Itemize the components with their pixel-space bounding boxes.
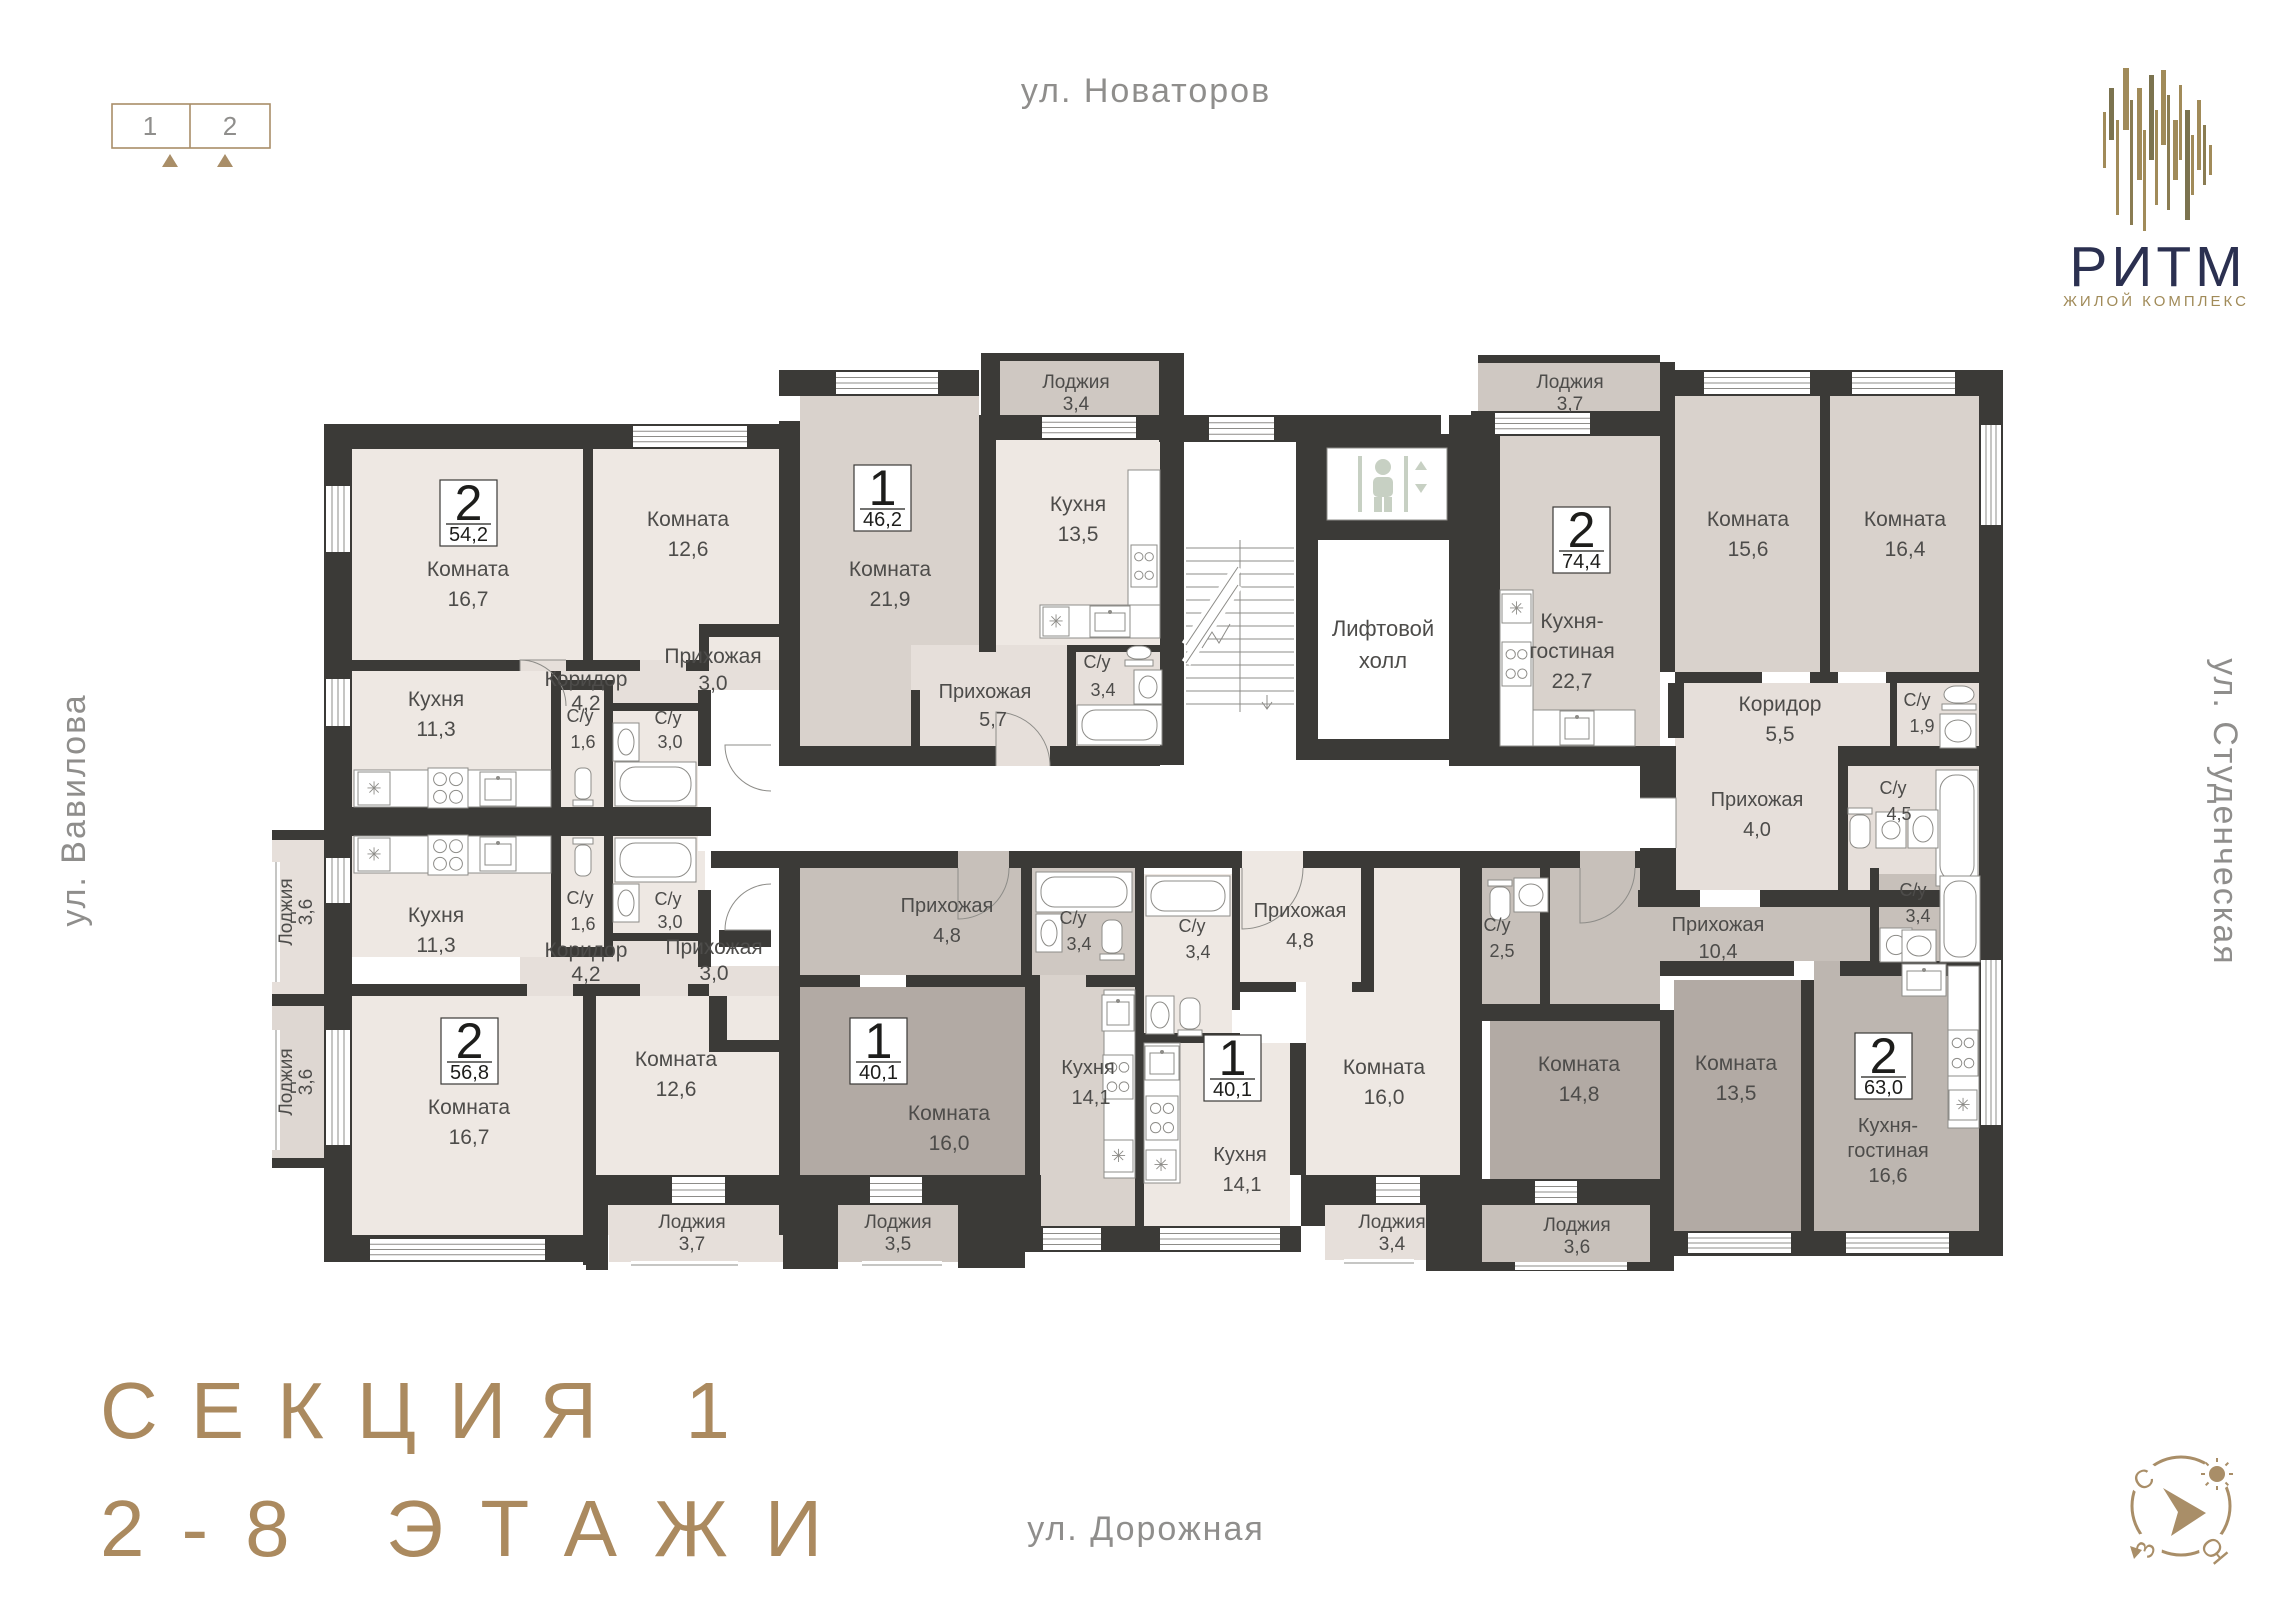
svg-text:12,6: 12,6: [668, 538, 709, 561]
svg-text:ул. Дорожная: ул. Дорожная: [1027, 1510, 1265, 1548]
svg-text:С/у: С/у: [1060, 908, 1087, 928]
svg-text:Прихожая: Прихожая: [1254, 900, 1347, 922]
svg-text:ул. Новаторов: ул. Новаторов: [1021, 72, 1271, 110]
svg-text:14,8: 14,8: [1559, 1083, 1600, 1106]
svg-text:4,8: 4,8: [1286, 930, 1314, 952]
svg-text:Прихожая: Прихожая: [665, 936, 762, 959]
svg-text:Лоджия: Лоджия: [1358, 1212, 1425, 1233]
svg-text:гостиная: гостиная: [1847, 1140, 1928, 1162]
svg-text:Лоджия: Лоджия: [276, 1048, 297, 1115]
svg-text:63,0: 63,0: [1864, 1077, 1903, 1099]
svg-text:✳: ✳: [366, 779, 381, 799]
svg-text:3,0: 3,0: [657, 912, 682, 932]
svg-text:3,7: 3,7: [679, 1234, 705, 1255]
svg-text:5,7: 5,7: [979, 709, 1007, 731]
svg-text:12,6: 12,6: [656, 1078, 697, 1101]
svg-text:3,0: 3,0: [699, 962, 728, 985]
svg-text:С/у: С/у: [1900, 880, 1927, 900]
svg-text:холл: холл: [1359, 648, 1407, 673]
svg-text:Комната: Комната: [427, 558, 510, 581]
svg-text:1: 1: [869, 460, 897, 516]
svg-text:С/у: С/у: [655, 889, 682, 909]
svg-text:3,0: 3,0: [698, 672, 727, 695]
svg-text:1: 1: [143, 111, 157, 141]
svg-text:11,3: 11,3: [416, 934, 455, 957]
svg-text:16,0: 16,0: [929, 1132, 970, 1155]
svg-text:Комната: Комната: [1864, 508, 1947, 531]
svg-text:Лоджия: Лоджия: [864, 1212, 931, 1233]
svg-text:Прихожая: Прихожая: [1711, 789, 1804, 811]
svg-text:✳: ✳: [1509, 599, 1524, 619]
svg-text:40,1: 40,1: [859, 1062, 898, 1084]
svg-text:Прихожая: Прихожая: [664, 645, 761, 668]
svg-text:10,4: 10,4: [1699, 941, 1738, 963]
svg-text:ЖИЛОЙ КОМПЛЕКС: ЖИЛОЙ КОМПЛЕКС: [2063, 292, 2249, 310]
svg-text:С/у: С/у: [567, 706, 594, 726]
svg-text:Кухня: Кухня: [1050, 493, 1106, 516]
svg-text:3,4: 3,4: [1905, 906, 1930, 926]
svg-text:Коридор: Коридор: [545, 668, 628, 691]
svg-text:С/у: С/у: [1484, 915, 1511, 935]
svg-text:15,6: 15,6: [1728, 538, 1769, 561]
svg-text:16,0: 16,0: [1364, 1086, 1405, 1109]
svg-text:2,5: 2,5: [1489, 941, 1514, 961]
svg-text:РИТМ: РИТМ: [2069, 235, 2246, 299]
svg-text:Прихожая: Прихожая: [901, 895, 994, 917]
svg-text:54,2: 54,2: [449, 524, 488, 546]
svg-text:2: 2: [455, 475, 483, 531]
svg-text:Комната: Комната: [647, 508, 730, 531]
svg-text:Кухня: Кухня: [408, 688, 464, 711]
svg-text:13,5: 13,5: [1058, 523, 1099, 546]
svg-text:46,2: 46,2: [863, 509, 902, 531]
svg-text:3,6: 3,6: [296, 1069, 317, 1095]
svg-text:Коридор: Коридор: [1739, 693, 1822, 716]
svg-text:Комната: Комната: [1695, 1052, 1778, 1075]
svg-text:Кухня-: Кухня-: [1858, 1115, 1918, 1137]
svg-text:3,7: 3,7: [1557, 394, 1583, 415]
svg-text:Лоджия: Лоджия: [1042, 372, 1109, 393]
svg-text:Кухня: Кухня: [1061, 1057, 1115, 1079]
svg-text:3,4: 3,4: [1063, 394, 1090, 415]
svg-text:2-8 ЭТАЖИ: 2-8 ЭТАЖИ: [100, 1484, 859, 1573]
svg-text:✳: ✳: [366, 845, 381, 865]
svg-text:Прихожая: Прихожая: [1672, 914, 1765, 936]
svg-text:Комната: Комната: [635, 1048, 718, 1071]
svg-text:2: 2: [1870, 1028, 1898, 1084]
svg-text:С/у: С/у: [1179, 916, 1206, 936]
svg-text:4,0: 4,0: [1743, 819, 1771, 841]
svg-text:3,4: 3,4: [1066, 934, 1091, 954]
svg-text:СЕКЦИЯ 1: СЕКЦИЯ 1: [100, 1366, 763, 1455]
svg-text:5,5: 5,5: [1765, 723, 1794, 746]
svg-text:16,7: 16,7: [448, 588, 489, 611]
svg-text:Лоджия: Лоджия: [658, 1212, 725, 1233]
svg-text:ул. Студенческая: ул. Студенческая: [2206, 658, 2244, 965]
svg-text:Комната: Комната: [849, 558, 932, 581]
svg-text:Комната: Комната: [1707, 508, 1790, 531]
svg-text:3,6: 3,6: [1564, 1237, 1590, 1258]
svg-text:1,6: 1,6: [570, 914, 595, 934]
svg-text:С/у: С/у: [1880, 778, 1907, 798]
svg-text:С/у: С/у: [655, 708, 682, 728]
svg-text:16,4: 16,4: [1885, 538, 1926, 561]
svg-text:✳: ✳: [1153, 1155, 1168, 1175]
svg-text:22,7: 22,7: [1552, 670, 1593, 693]
svg-text:ул. Вавилова: ул. Вавилова: [55, 693, 93, 926]
svg-text:1,6: 1,6: [570, 732, 595, 752]
svg-text:3,6: 3,6: [296, 899, 317, 925]
svg-text:Лоджия: Лоджия: [1536, 372, 1603, 393]
svg-text:16,6: 16,6: [1869, 1165, 1908, 1187]
svg-text:✳: ✳: [1048, 612, 1063, 632]
svg-text:С/у: С/у: [1084, 652, 1111, 672]
svg-text:4,8: 4,8: [933, 925, 961, 947]
svg-text:14,1: 14,1: [1223, 1174, 1262, 1196]
svg-text:Коридор: Коридор: [545, 939, 628, 962]
svg-text:16,7: 16,7: [449, 1126, 490, 1149]
svg-text:Лоджия: Лоджия: [276, 878, 297, 945]
svg-text:Комната: Комната: [1538, 1053, 1621, 1076]
svg-text:11,3: 11,3: [416, 718, 455, 741]
svg-text:Кухня: Кухня: [408, 904, 464, 927]
svg-text:1,9: 1,9: [1909, 716, 1934, 736]
svg-text:14,1: 14,1: [1072, 1087, 1111, 1109]
svg-text:3,5: 3,5: [885, 1234, 911, 1255]
svg-text:40,1: 40,1: [1213, 1079, 1252, 1101]
svg-text:Комната: Комната: [428, 1096, 511, 1119]
svg-text:Лоджия: Лоджия: [1543, 1215, 1610, 1236]
svg-text:21,9: 21,9: [870, 588, 911, 611]
svg-text:1: 1: [1219, 1030, 1247, 1086]
svg-text:Комната: Комната: [908, 1102, 991, 1125]
svg-text:Кухня: Кухня: [1213, 1144, 1267, 1166]
svg-text:✳: ✳: [1955, 1095, 1970, 1115]
svg-text:2: 2: [1568, 502, 1596, 558]
svg-text:4,2: 4,2: [571, 963, 600, 986]
svg-text:Комната: Комната: [1343, 1056, 1426, 1079]
svg-text:3,4: 3,4: [1379, 1234, 1406, 1255]
svg-text:гостиная: гостиная: [1529, 640, 1614, 663]
svg-text:4,5: 4,5: [1886, 804, 1911, 824]
svg-text:Кухня-: Кухня-: [1540, 610, 1603, 633]
svg-text:Лифтовой: Лифтовой: [1332, 616, 1434, 641]
svg-text:13,5: 13,5: [1716, 1082, 1757, 1105]
svg-text:56,8: 56,8: [450, 1062, 489, 1084]
svg-text:2: 2: [223, 111, 237, 141]
svg-text:1: 1: [865, 1013, 893, 1069]
svg-text:2: 2: [456, 1013, 484, 1069]
svg-text:С/у: С/у: [1904, 690, 1931, 710]
svg-text:С/у: С/у: [567, 888, 594, 908]
svg-text:3,0: 3,0: [657, 732, 682, 752]
svg-text:74,4: 74,4: [1562, 551, 1601, 573]
svg-text:3,4: 3,4: [1090, 680, 1115, 700]
svg-text:3,4: 3,4: [1185, 942, 1210, 962]
svg-text:Прихожая: Прихожая: [939, 681, 1032, 703]
svg-text:✳: ✳: [1111, 1146, 1126, 1166]
